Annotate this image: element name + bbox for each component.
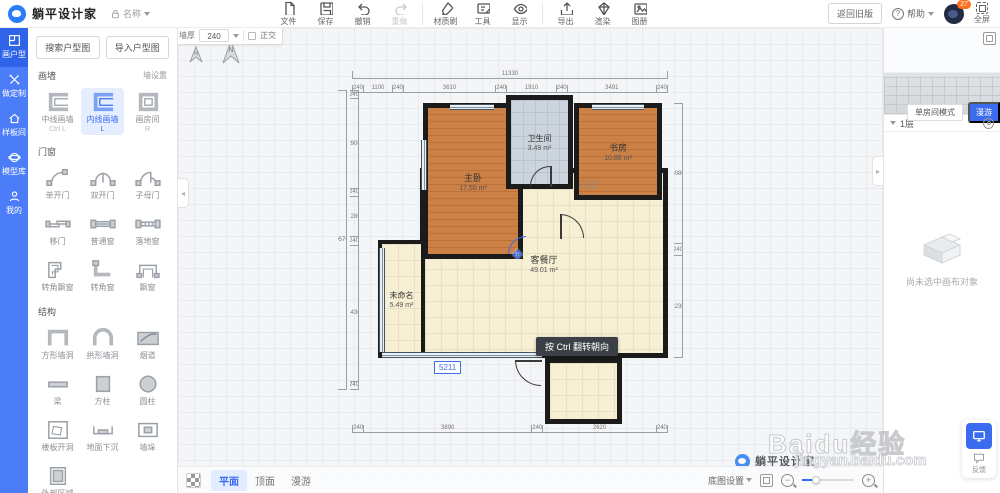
empty-state-text: 尚未选中画布对象 <box>906 275 978 288</box>
screen-cast-button[interactable] <box>966 423 992 449</box>
nav-customize[interactable]: 做定制 <box>0 67 28 106</box>
view-tab-ceiling[interactable]: 顶面 <box>247 470 283 491</box>
redo-button[interactable]: 重做 <box>381 1 418 27</box>
render-icon <box>596 1 610 15</box>
innerline-wall-icon <box>88 91 118 113</box>
tool-centerline-wall[interactable]: 中线画墙 Ctrl L <box>36 88 79 135</box>
file-icon <box>282 1 296 15</box>
album-button[interactable]: 图册 <box>621 1 658 27</box>
dimension-line-bottom: 240 3890 240 2620 240 <box>352 426 668 433</box>
centerline-wall-icon <box>43 91 73 113</box>
arched-wall-hole-icon <box>88 327 118 349</box>
chat-bubble-icon <box>973 452 985 464</box>
pattern-swatch-button[interactable] <box>186 473 201 488</box>
search-floorplan-button[interactable]: 搜索户型图 <box>36 36 100 59</box>
chevron-down-icon[interactable] <box>233 34 239 38</box>
double-door-icon <box>88 167 118 189</box>
tool-square-column[interactable]: 方柱 <box>81 370 124 409</box>
help-icon: ? <box>892 8 904 20</box>
svg-text:N: N <box>194 51 198 57</box>
empty-selection-state: 尚未选中画布对象 <box>884 227 1000 288</box>
app-title: 躺平设计家 <box>32 5 97 22</box>
dimension-line-top-total: 11330 <box>352 72 668 79</box>
floating-widget: 反馈 <box>962 420 996 478</box>
monitor-icon <box>972 429 986 443</box>
wall-settings-link[interactable]: 墙设置 <box>143 70 167 81</box>
house-icon <box>8 112 21 125</box>
tool-double-door[interactable]: 双开门 <box>81 164 124 203</box>
tool-flue[interactable]: 烟道 <box>126 324 169 363</box>
chevron-down-icon <box>928 12 934 16</box>
basemap-settings-button[interactable]: 底图设置 <box>708 474 752 487</box>
wall-thickness-label: 墙厚 <box>179 30 195 41</box>
zoom-in-icon[interactable]: + <box>862 474 875 487</box>
wrench-hammer-icon <box>8 73 21 86</box>
tool-square-wall-hole[interactable]: 方形墙洞 <box>36 324 79 363</box>
single-room-mode-button[interactable]: 单房间模式 <box>907 104 963 121</box>
hint-tooltip: 按 Ctrl 翻转朝向 <box>536 337 618 356</box>
nav-draw-floorplan[interactable]: 画户型 <box>0 28 28 67</box>
tool-bay-window[interactable]: 飘窗 <box>126 256 169 295</box>
import-floorplan-button[interactable]: 导入户型图 <box>106 36 170 59</box>
beam-icon <box>43 373 73 395</box>
dimension-input[interactable]: 5211 <box>434 361 461 374</box>
render-button[interactable]: 渲染 <box>584 1 621 27</box>
nav-showrooms[interactable]: 样板间 <box>0 106 28 145</box>
tool-sunken-floor[interactable]: 地面下沉 <box>81 416 124 455</box>
tool-sliding-door[interactable]: 移门 <box>36 210 79 249</box>
back-to-old-version-button[interactable]: 返回旧版 <box>828 3 882 24</box>
ortho-label: 正交 <box>260 30 276 41</box>
square-wall-hole-icon <box>43 327 73 349</box>
unequal-double-door-icon <box>133 167 163 189</box>
globe-icon <box>8 151 21 164</box>
room-unnamed-balcony[interactable]: 未命名 5.49 m² <box>378 240 425 358</box>
ortho-checkbox[interactable] <box>248 32 256 40</box>
tool-corner-bay-window[interactable]: 转角飘窗 <box>36 256 79 295</box>
zoom-out-icon[interactable]: − <box>781 474 794 487</box>
dimension-line-right: 3080 240 2230 <box>674 103 683 358</box>
lock-icon <box>111 9 120 19</box>
window-master-top[interactable] <box>450 104 494 110</box>
collapse-right-panel-handle[interactable]: ▸ <box>872 156 883 186</box>
zoom-slider-knob[interactable] <box>812 476 820 484</box>
fullscreen-icon <box>976 2 988 14</box>
view-tab-roam[interactable]: 漫游 <box>283 470 319 491</box>
tool-window[interactable]: 普通窗 <box>81 210 124 249</box>
document-name-label: 名称 <box>123 7 141 20</box>
app-logo-icon[interactable] <box>8 5 26 23</box>
document-name[interactable]: 名称 <box>111 7 150 20</box>
wall-thickness-bar: 墙厚 240 正交 <box>172 26 283 45</box>
toolbar-divider <box>422 3 423 25</box>
export-icon <box>559 1 573 15</box>
corner-window-icon <box>88 259 118 281</box>
tool-single-door[interactable]: 单开门 <box>36 164 79 203</box>
window-icon <box>88 213 118 235</box>
sunken-floor-icon <box>88 419 118 441</box>
square-column-icon <box>88 373 118 395</box>
tools-icon <box>476 1 490 15</box>
window-study-top[interactable] <box>592 104 644 110</box>
album-icon <box>633 1 647 15</box>
chevron-down-icon <box>746 478 752 482</box>
gear-icon[interactable] <box>983 118 994 129</box>
chevron-down-icon <box>144 12 150 16</box>
tool-draw-room[interactable]: 画房间 R <box>126 88 169 135</box>
wall-pier-icon <box>133 419 163 441</box>
fullscreen-button[interactable]: 全屏 <box>974 2 990 25</box>
feedback-button[interactable]: 反馈 <box>972 452 986 475</box>
section-title-walls: 画墙 <box>38 69 56 82</box>
tool-beam[interactable]: 梁 <box>36 370 79 409</box>
french-window-icon <box>133 213 163 235</box>
round-column-icon <box>133 373 163 395</box>
floor-opening-icon <box>43 419 73 441</box>
door-bottom[interactable] <box>515 360 541 386</box>
single-door-icon <box>43 167 73 189</box>
entrance-label: 入口 <box>578 178 598 191</box>
file-button[interactable]: 文件 <box>270 1 307 27</box>
redo-icon <box>393 1 407 15</box>
window-balcony-left[interactable] <box>379 248 385 352</box>
room-bottom-annex[interactable] <box>545 358 622 424</box>
notification-badge: 27 <box>957 0 971 9</box>
fullscreen-label: 全屏 <box>974 14 990 25</box>
tool-external-area[interactable]: 外部区域 <box>36 462 79 493</box>
header-bar: 躺平设计家 名称 文件 保存 撤销 重做 材质刷 工具 <box>0 0 1000 28</box>
tools-button[interactable]: 工具 <box>464 1 501 27</box>
bay-window-icon <box>133 259 163 281</box>
undo-button[interactable]: 撤销 <box>344 1 381 27</box>
view-tab-plan[interactable]: 平面 <box>211 470 247 491</box>
undo-icon <box>356 1 370 15</box>
wall-thickness-input[interactable]: 240 <box>199 29 229 42</box>
flue-icon <box>133 327 163 349</box>
canvas-bottom-bar: 平面 顶面 漫游 底图设置 − + <box>178 466 883 493</box>
fit-view-icon[interactable] <box>760 474 773 487</box>
dimension-line-top-segments: 240 1100 240 3610 240 1910 240 3491 240 <box>352 86 668 93</box>
sliding-door-icon <box>43 213 73 235</box>
person-icon <box>8 190 21 203</box>
floorplan-icon <box>8 34 21 47</box>
material-brush-button[interactable]: 材质刷 <box>427 1 464 27</box>
tool-round-column[interactable]: 圆柱 <box>126 370 169 409</box>
tool-arched-wall-hole[interactable]: 拱形墙洞 <box>81 324 124 363</box>
brush-icon <box>439 1 453 15</box>
tool-wall-pier[interactable]: 墙垛 <box>126 416 169 455</box>
left-nav-rail: 画户型 做定制 样板间 模型库 我的 <box>0 28 28 493</box>
save-button[interactable]: 保存 <box>307 1 344 27</box>
help-label: 帮助 <box>907 7 925 20</box>
tool-french-window[interactable]: 落地窗 <box>126 210 169 249</box>
tool-floor-opening[interactable]: 楼板开洞 <box>36 416 79 455</box>
export-button[interactable]: 导出 <box>547 1 584 27</box>
move-cursor-icon: ✥ <box>512 248 523 261</box>
tool-unequal-double-door[interactable]: 子母门 <box>126 164 169 203</box>
help-menu[interactable]: ? 帮助 <box>892 7 934 20</box>
external-area-icon <box>43 465 73 487</box>
collapse-left-panel-handle[interactable]: ◂ <box>178 178 189 208</box>
toolbar-divider <box>542 3 543 25</box>
tool-panel: 搜索户型图 导入户型图 画墙 墙设置 中线画墙 Ctrl L 内线画墙 L 画房… <box>28 28 178 493</box>
corner-bay-window-icon <box>43 259 73 281</box>
empty-box-illustration <box>914 227 970 267</box>
floorplan-canvas[interactable]: 墙厚 240 正交 N N 11330 240 1100 240 3610 24… <box>178 28 883 493</box>
nav-my-account[interactable]: 我的 <box>0 184 28 223</box>
save-icon <box>319 1 333 15</box>
user-avatar[interactable]: 27 <box>944 4 964 24</box>
eye-icon <box>513 1 527 15</box>
display-button[interactable]: 显示 <box>501 1 538 27</box>
dimension-line-left-segments: 240 2900 240 1280 240 4430 240 <box>350 90 359 390</box>
dimension-line-left-total: 9570 <box>338 90 347 390</box>
section-title-doors-windows: 门窗 <box>38 145 56 158</box>
window-master-left[interactable] <box>421 140 427 190</box>
zoom-slider[interactable] <box>802 479 854 481</box>
main-toolbar: 文件 保存 撤销 重做 材质刷 工具 显示 导出 <box>270 1 658 27</box>
svg-text:N: N <box>228 47 233 54</box>
north-arrow-icon: N <box>188 46 204 64</box>
tool-corner-window[interactable]: 转角窗 <box>81 256 124 295</box>
expand-preview-icon[interactable] <box>983 32 996 45</box>
window-balcony-bottom[interactable] <box>382 352 542 358</box>
section-title-structure: 结构 <box>38 305 56 318</box>
nav-model-library[interactable]: 模型库 <box>0 145 28 184</box>
draw-room-icon <box>133 91 163 113</box>
tool-innerline-wall[interactable]: 内线画墙 L <box>81 88 124 135</box>
header-right: 返回旧版 ? 帮助 27 全屏 <box>828 2 990 25</box>
